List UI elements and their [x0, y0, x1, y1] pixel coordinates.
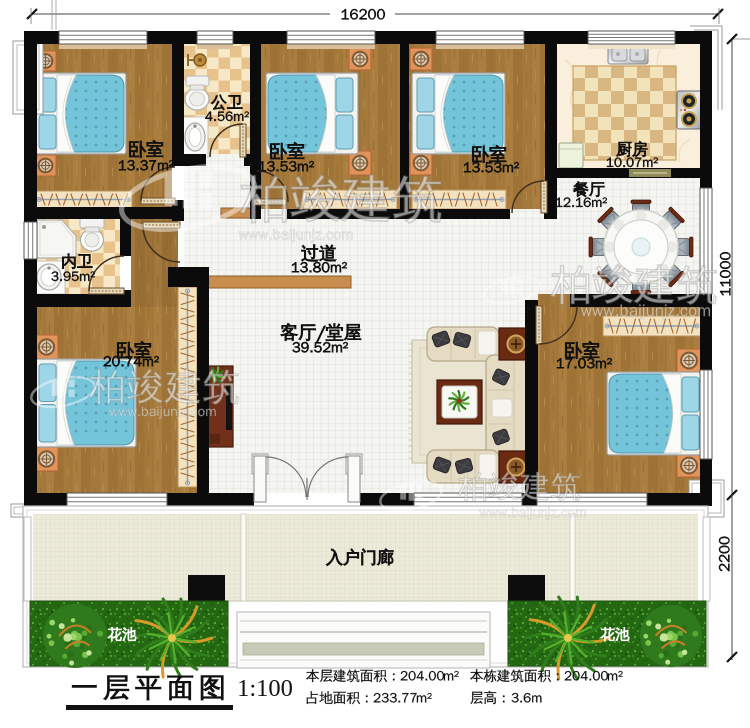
svg-text:1:100: 1:100 [237, 675, 293, 702]
